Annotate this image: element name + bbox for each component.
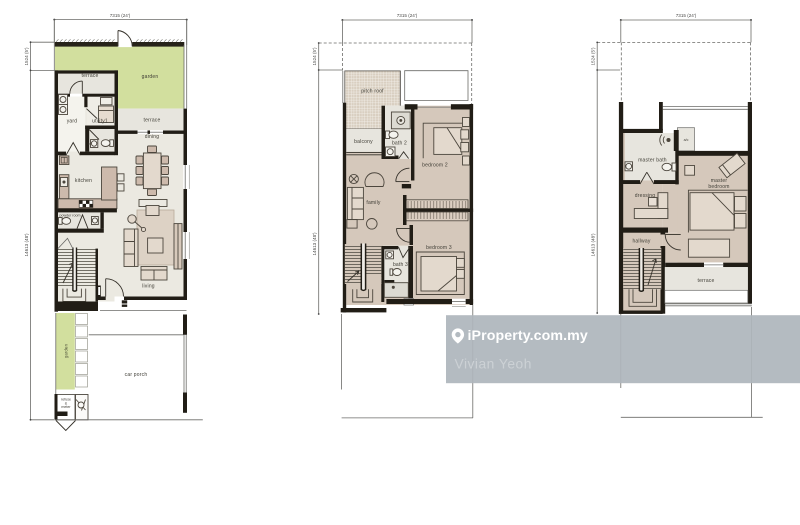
svg-text:garden: garden: [64, 343, 69, 358]
svg-text:1524 (5'): 1524 (5'): [24, 47, 29, 65]
svg-text:dining: dining: [145, 134, 160, 140]
svg-text:iProperty.com.my: iProperty.com.my: [468, 328, 588, 344]
svg-text:pitch roof: pitch roof: [361, 88, 384, 94]
svg-text:terrace: terrace: [698, 278, 715, 284]
svg-text:bedroom 3: bedroom 3: [426, 245, 452, 251]
svg-text:hallway: hallway: [632, 238, 650, 244]
svg-text:balcony: balcony: [354, 139, 373, 145]
svg-text:living: living: [142, 284, 155, 290]
svg-text:utility1: utility1: [92, 119, 108, 125]
svg-text:1524 (5'): 1524 (5'): [312, 47, 317, 65]
svg-text:7315 (24'): 7315 (24'): [110, 13, 131, 18]
svg-text:bath 3: bath 3: [393, 262, 408, 268]
svg-text:7315 (24'): 7315 (24'): [397, 13, 418, 18]
svg-text:powder room: powder room: [60, 214, 81, 218]
svg-text:14613 (48'): 14613 (48'): [591, 233, 596, 257]
svg-text:dressing: dressing: [635, 193, 656, 199]
svg-text:terrace: terrace: [82, 73, 99, 79]
svg-text:bedroom 2: bedroom 2: [422, 162, 448, 168]
svg-text:14613 (48'): 14613 (48'): [24, 233, 29, 257]
svg-text:meter: meter: [61, 405, 71, 409]
svg-text:kitchen: kitchen: [75, 178, 92, 184]
svg-text:14613 (48'): 14613 (48'): [312, 232, 317, 256]
svg-text:bedroom: bedroom: [708, 184, 729, 190]
svg-text:garden: garden: [142, 74, 159, 80]
svg-text:master bath: master bath: [638, 157, 667, 163]
svg-text:7315 (24'): 7315 (24'): [676, 13, 697, 18]
svg-text:1524 (5'): 1524 (5'): [591, 47, 596, 65]
svg-text:a/c: a/c: [684, 138, 689, 142]
svg-text:family: family: [366, 200, 381, 206]
svg-text:bath 2: bath 2: [392, 141, 407, 147]
svg-text:yard: yard: [67, 119, 78, 125]
svg-text:terrace: terrace: [144, 117, 161, 123]
svg-text:car porch: car porch: [125, 372, 148, 378]
svg-text:Vivian Yeoh: Vivian Yeoh: [455, 357, 532, 372]
